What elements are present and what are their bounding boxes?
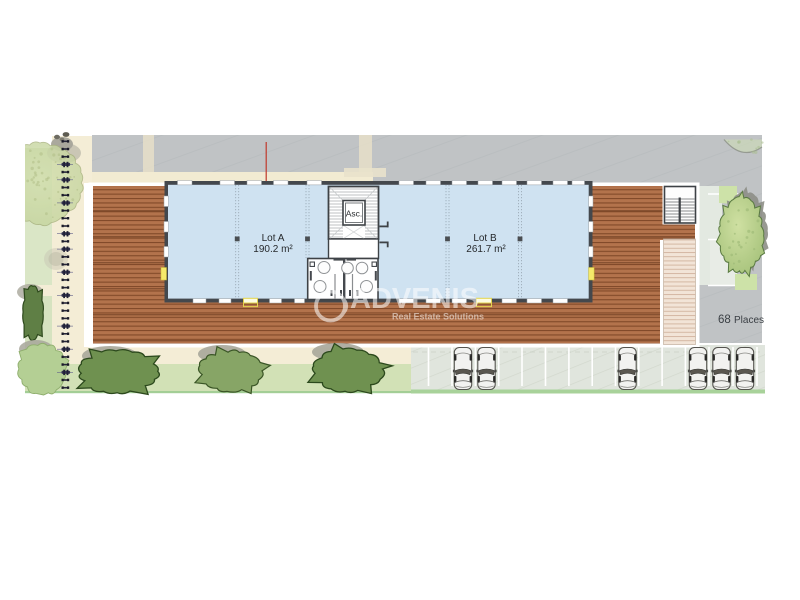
svg-text:Lot B: Lot B	[473, 233, 497, 244]
svg-text:Real Estate Solutions: Real Estate Solutions	[392, 312, 484, 322]
svg-text:Lot A: Lot A	[262, 233, 285, 244]
svg-text:190.2 m²: 190.2 m²	[253, 244, 293, 255]
svg-text:261.7 m²: 261.7 m²	[466, 244, 506, 255]
svg-text:68: 68	[718, 314, 731, 326]
svg-text:ADVENIS: ADVENIS	[350, 283, 479, 315]
svg-text:Asc.: Asc.	[346, 209, 363, 219]
svg-text:Places: Places	[734, 315, 764, 326]
